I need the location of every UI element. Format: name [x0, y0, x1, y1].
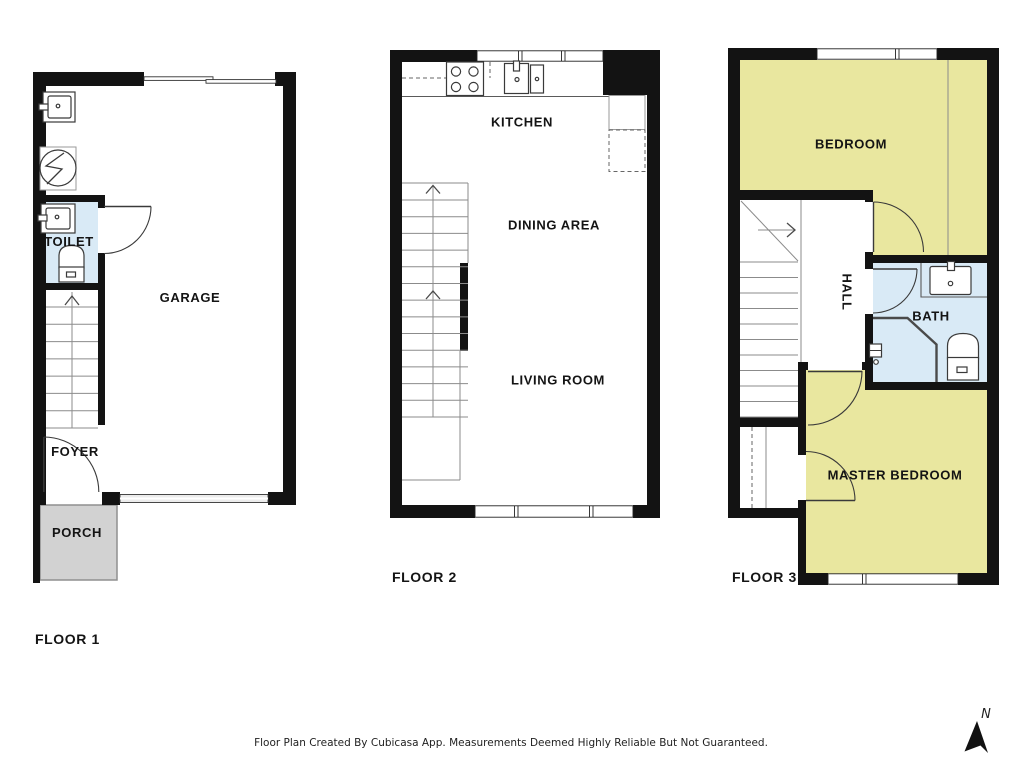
floorplan-svg: TOILET GARAGE FOYER PORCH FLOOR 1 [0, 0, 1024, 768]
sink-icon [38, 204, 75, 233]
wall [862, 362, 865, 370]
stairs-floor1 [46, 292, 98, 428]
wall [390, 50, 402, 518]
closet-floor3 [752, 427, 766, 508]
floor2-title: FLOOR 2 [392, 569, 457, 585]
floor2-plan: KITCHEN DINING AREA LIVING ROOM FLOOR 2 [390, 50, 660, 585]
room-label-dining: DINING AREA [508, 218, 600, 233]
toilet-icon [948, 334, 979, 381]
bedroom-fill [740, 60, 987, 255]
room-label-bedroom: BEDROOM [815, 137, 887, 152]
stairs-floor3 [740, 200, 801, 417]
wall [728, 48, 740, 518]
kitchen-sink-icon [505, 61, 529, 94]
wall [33, 505, 40, 583]
wall [33, 283, 105, 290]
wall [283, 72, 296, 505]
wall [633, 505, 660, 518]
dishwasher-icon [531, 65, 544, 93]
wall [647, 95, 660, 518]
wall [865, 382, 999, 390]
window-icon [120, 495, 268, 503]
floor1-plan: TOILET GARAGE FOYER PORCH FLOOR 1 [33, 72, 296, 647]
room-label-porch: PORCH [52, 525, 102, 540]
stove-icon [447, 62, 484, 96]
door-swing-arc [104, 207, 151, 254]
fridge-icon [609, 96, 645, 130]
room-label-kitchen: KITCHEN [491, 115, 553, 130]
room-label-hall: HALL [840, 273, 855, 310]
wall [33, 195, 105, 202]
floor3-title: FLOOR 3 [732, 569, 797, 585]
window-icon [477, 51, 603, 61]
window-icon [828, 574, 958, 584]
stairs-floor2 [402, 183, 468, 480]
cabinet-dashed-icon [609, 130, 645, 172]
utility-sink-icon [39, 92, 75, 122]
window-icon [817, 49, 937, 59]
wall [728, 417, 798, 427]
wall [798, 362, 806, 427]
wall [798, 573, 828, 585]
toilet-icon [59, 246, 84, 283]
room-label-foyer: FOYER [51, 444, 99, 459]
wall [98, 195, 105, 208]
wall [390, 505, 475, 518]
wall [603, 50, 660, 95]
north-arrow: N [965, 707, 992, 753]
wall [798, 500, 806, 585]
wall [987, 48, 999, 585]
room-label-toilet: TOILET [44, 234, 94, 249]
north-label: N [981, 707, 991, 722]
garage-door-icon [144, 77, 276, 83]
room-label-garage: GARAGE [160, 290, 221, 305]
wall [865, 255, 999, 263]
window-icon [475, 506, 633, 517]
wall [728, 508, 798, 518]
wall [728, 48, 817, 60]
floor1-title: FLOOR 1 [35, 631, 100, 647]
floorplan-page: TOILET GARAGE FOYER PORCH FLOOR 1 [0, 0, 1024, 768]
porch-fill [40, 505, 117, 580]
wall [268, 492, 296, 505]
room-label-living: LIVING ROOM [511, 373, 605, 388]
wall [865, 263, 873, 269]
wall [390, 50, 477, 62]
water-heater-icon [40, 147, 76, 190]
wall [865, 190, 873, 202]
wall [958, 573, 999, 585]
disclaimer-text: Floor Plan Created By Cubicasa App. Meas… [254, 737, 768, 749]
room-label-bath: BATH [912, 309, 950, 324]
north-arrow-icon [965, 721, 989, 753]
floor3-plan: BEDROOM HALL BATH MASTER BEDROOM FLOOR 3 [728, 48, 999, 585]
wall [798, 427, 806, 455]
wall [33, 72, 144, 86]
wall [102, 492, 120, 505]
room-label-master-bedroom: MASTER BEDROOM [828, 468, 963, 483]
wall [728, 190, 873, 200]
wall [98, 290, 105, 425]
